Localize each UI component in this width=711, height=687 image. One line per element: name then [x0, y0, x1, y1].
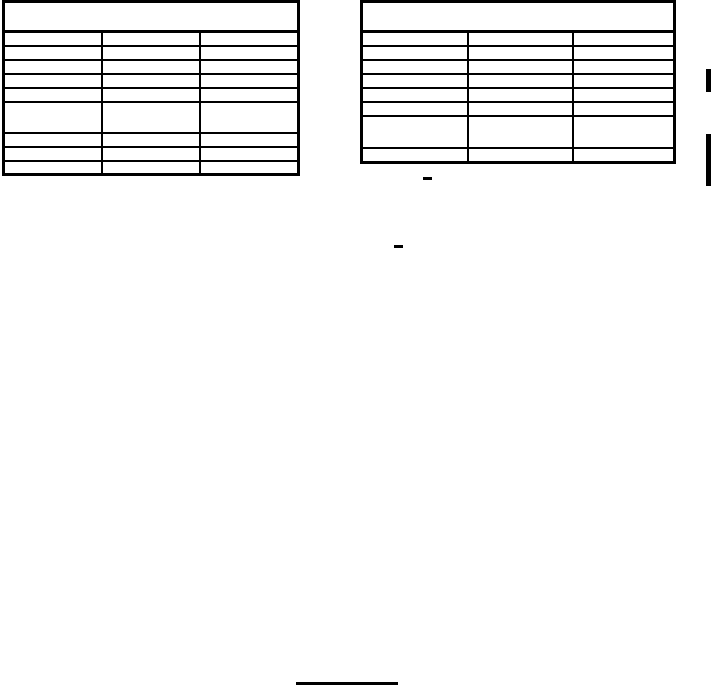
- table-cell: [102, 133, 200, 147]
- left-table: [2, 0, 300, 176]
- stray-dash-mark: [394, 245, 403, 248]
- table-cell: [102, 74, 200, 88]
- table-cell: [200, 147, 299, 161]
- table-cell: [102, 88, 200, 102]
- table-cell: [362, 148, 468, 163]
- table-row: [362, 74, 675, 88]
- table-cell: [362, 88, 468, 102]
- left-table-header-cell: [4, 2, 299, 32]
- table-cell: [573, 46, 675, 60]
- table-cell: [200, 32, 299, 46]
- table-row: [4, 102, 299, 133]
- footer-rule: [296, 682, 398, 685]
- table-cell: [200, 74, 299, 88]
- table-row: [4, 88, 299, 102]
- right-table-header-cell: [362, 2, 675, 32]
- table-cell: [573, 88, 675, 102]
- table-row: [4, 147, 299, 161]
- table-cell: [362, 102, 468, 116]
- table-row: [4, 133, 299, 147]
- table-cell: [102, 32, 200, 46]
- table-cell: [573, 148, 675, 163]
- table-row: [4, 74, 299, 88]
- table-cell: [362, 32, 468, 46]
- table-cell: [4, 147, 102, 161]
- change-bar-short: [706, 69, 711, 92]
- table-cell: [468, 88, 573, 102]
- table-cell: [362, 116, 468, 148]
- table-row: [362, 148, 675, 163]
- table-cell: [468, 102, 573, 116]
- table-cell: [362, 74, 468, 88]
- table-row: [362, 88, 675, 102]
- table-cell: [4, 88, 102, 102]
- table-cell: [468, 60, 573, 74]
- table-cell: [468, 32, 573, 46]
- table-cell: [468, 148, 573, 163]
- table-cell: [573, 60, 675, 74]
- left-table-header-row: [4, 2, 299, 32]
- table-cell: [468, 74, 573, 88]
- table-row: [362, 32, 675, 46]
- table-row: [4, 60, 299, 74]
- table-cell: [362, 46, 468, 60]
- right-table: [360, 0, 676, 164]
- table-cell: [468, 116, 573, 148]
- table-cell: [573, 32, 675, 46]
- table-row: [4, 161, 299, 175]
- change-bar-long: [706, 134, 711, 186]
- table-cell: [200, 133, 299, 147]
- table-cell: [200, 46, 299, 60]
- table-cell: [4, 32, 102, 46]
- table-row: [362, 46, 675, 60]
- table-cell: [4, 133, 102, 147]
- table-cell: [4, 46, 102, 60]
- table-row: [362, 116, 675, 148]
- table-cell: [4, 161, 102, 175]
- table-cell: [102, 161, 200, 175]
- table-cell: [200, 88, 299, 102]
- table-row: [362, 60, 675, 74]
- table-cell: [4, 60, 102, 74]
- table-row: [362, 102, 675, 116]
- table-cell: [102, 147, 200, 161]
- cell-dash-mark: [423, 177, 432, 180]
- right-table-header-row: [362, 2, 675, 32]
- table-cell: [468, 46, 573, 60]
- table-cell: [102, 102, 200, 133]
- table-cell: [4, 74, 102, 88]
- table-row: [4, 46, 299, 60]
- table-cell: [200, 60, 299, 74]
- table-cell: [102, 46, 200, 60]
- table-cell: [573, 102, 675, 116]
- table-cell: [573, 116, 675, 148]
- table-cell: [362, 60, 468, 74]
- table-cell: [4, 102, 102, 133]
- table-row: [4, 32, 299, 46]
- table-cell: [102, 60, 200, 74]
- table-cell: [573, 74, 675, 88]
- table-cell: [200, 102, 299, 133]
- table-cell: [200, 161, 299, 175]
- document-page: [0, 0, 711, 687]
